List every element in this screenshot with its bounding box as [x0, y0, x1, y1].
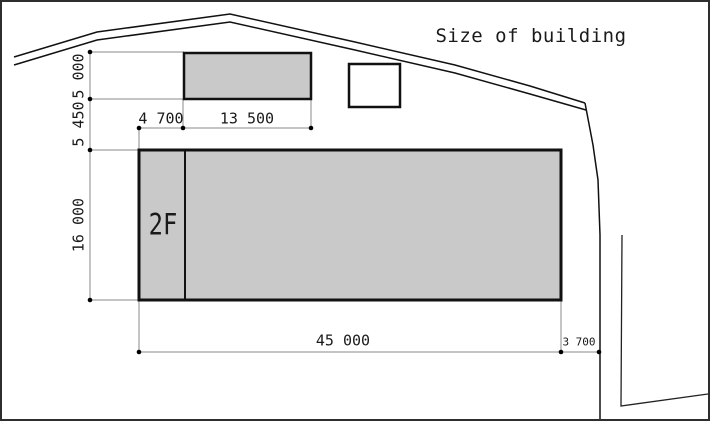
dim-label-upper-height: 5 000: [72, 53, 87, 98]
dim-label-main-height: 16 000: [72, 198, 87, 252]
building-main-rect: [139, 150, 561, 300]
site-plan-drawing: Size of building 5 000 5 450 16 000 4 70…: [0, 0, 710, 421]
building-upper-rect: [184, 53, 311, 99]
dim-label-between-height: 5 450: [72, 101, 87, 146]
inner-right-line: [621, 235, 708, 406]
building-annex-rect: [349, 64, 400, 107]
drawing-title: Size of building: [435, 27, 627, 46]
floor-label: 2F: [149, 211, 178, 240]
dim-label-upper-offset: 4 700: [138, 112, 183, 127]
dim-label-main-width: 45 000: [316, 334, 370, 349]
dim-label-right-offset: 3 700: [562, 337, 595, 348]
drawing-lines: [2, 2, 708, 419]
dim-label-upper-width: 13 500: [220, 112, 274, 127]
boundary-line-right: [585, 103, 600, 419]
